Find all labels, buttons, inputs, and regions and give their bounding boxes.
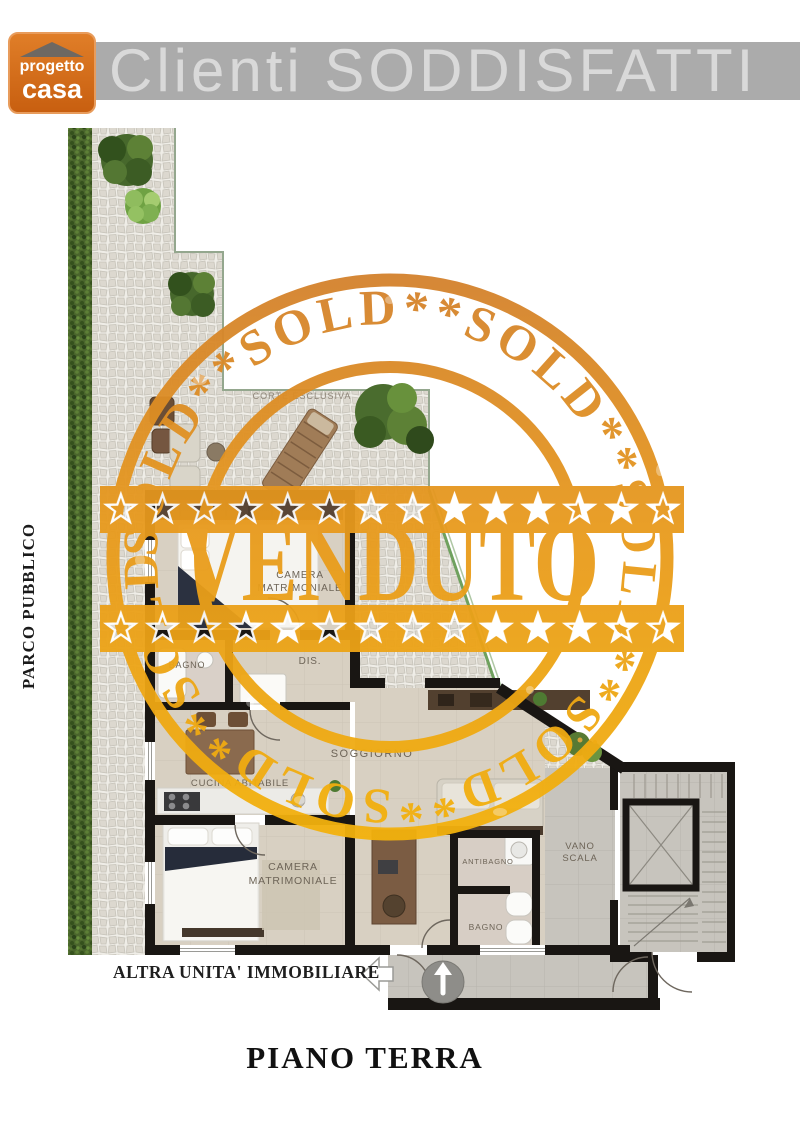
park-label: PARCO PUBBLICO: [19, 511, 41, 701]
bedroom1-furniture: [157, 500, 343, 628]
plant: [125, 188, 161, 224]
label-terrace: CORTE ESCLUSIVA: [253, 391, 352, 401]
neighbor-unit-label: ALTRA UNITA' IMMOBILIARE: [113, 962, 380, 983]
label-bagno1: BAGNO: [169, 660, 206, 670]
logo-word-2: casa: [10, 76, 94, 103]
desk-furniture: [372, 830, 416, 924]
floor-caption: PIANO TERRA: [115, 1040, 615, 1076]
label-dis: DIS.: [299, 656, 322, 667]
label-bagno2: BAGNO: [469, 922, 504, 932]
up-arrow-circle-icon: [422, 961, 464, 1003]
label-vano-line1: VANO: [565, 841, 594, 852]
label-camera2-line1: CAMERA: [268, 861, 318, 873]
label-camera2-line2: MATRIMONIALE: [249, 875, 338, 887]
label-camera1-line2: MATRIMONIALE: [258, 583, 343, 594]
label-camera1-line1: CAMERA: [276, 570, 324, 581]
label-antibagno: ANTIBAGNO: [462, 857, 513, 866]
plant: [168, 272, 215, 317]
header-banner: Clienti SODDISFATTI: [95, 42, 800, 100]
label-soggiorno: SOGGIORNO: [331, 748, 414, 760]
label-cucina: CUCINA ABITABILE: [191, 778, 289, 789]
banner-title: Clienti SODDISFATTI: [95, 42, 757, 100]
poster-page: CAMERA MATRIMONIALE BAGNO DIS. CUCINA AB…: [0, 0, 800, 1131]
label-vano-line2: SCALA: [562, 853, 597, 864]
roof-triangle-icon: [20, 42, 84, 57]
plant: [98, 134, 153, 186]
agency-logo: progetto casa: [8, 32, 96, 114]
hedge: [68, 128, 92, 955]
